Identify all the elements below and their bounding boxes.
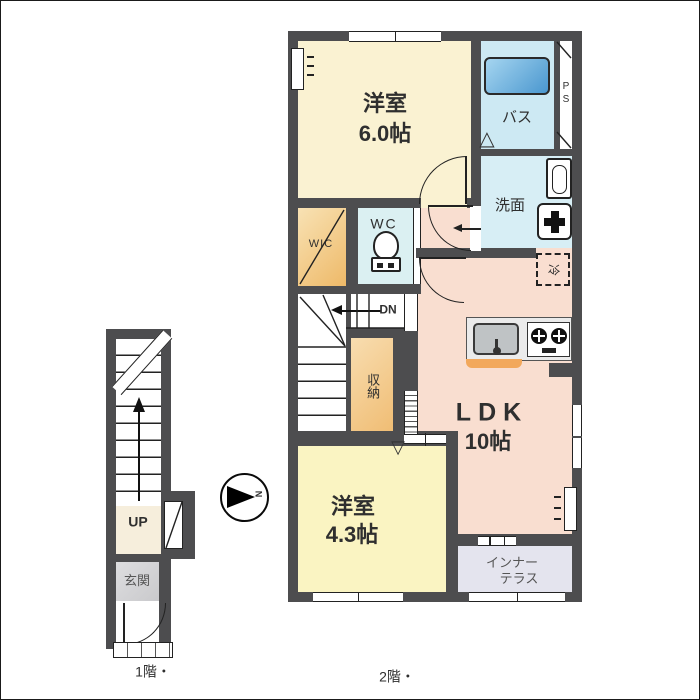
sink-icon: [537, 203, 572, 240]
washing-machine-icon: [546, 158, 572, 199]
dn-arrow-line: [341, 310, 381, 312]
kitchen-stove: [527, 322, 570, 357]
fridge-label: 冷: [546, 263, 559, 275]
bedroom1-size: 6.0帖: [359, 122, 412, 146]
wall: [471, 41, 481, 206]
dn-label: DN: [379, 303, 396, 316]
wc-label: WC: [370, 216, 397, 231]
fold-door-icon: △: [479, 128, 494, 150]
window: [313, 592, 403, 602]
ldk-size: 10帖: [465, 430, 511, 454]
ldk-door-leaf: [419, 257, 466, 259]
floor2-caption: 2階・: [379, 669, 415, 684]
compass-needle: [227, 486, 255, 508]
bedroom2-size: 4.3帖: [326, 523, 379, 547]
wc-door: [413, 208, 421, 284]
up-label: UP: [128, 514, 147, 529]
toilet-tank-detail: [388, 263, 394, 268]
wall: [549, 363, 582, 377]
panel-dash: [554, 496, 561, 498]
window: [572, 405, 582, 436]
wall: [358, 284, 421, 294]
stairs-entry-door: [404, 294, 418, 331]
porch: [113, 642, 173, 658]
bath-label: バス: [502, 110, 532, 127]
up-arrow-head: [133, 397, 145, 412]
wall: [393, 338, 404, 431]
wall: [346, 328, 404, 338]
toilet-tank-detail: [377, 263, 383, 268]
wall: [479, 149, 582, 156]
burner: [551, 328, 567, 344]
up-arrow-line: [138, 411, 140, 501]
terrace-label-line1: インナー: [486, 556, 538, 570]
stairs2f-run: [298, 348, 346, 431]
fridge-box: 冷: [536, 253, 570, 286]
ldk-name: LDK: [456, 399, 528, 427]
ps-label: PS: [561, 81, 572, 107]
bedroom1-door-leaf: [465, 156, 467, 204]
kitchen-sink: [473, 323, 519, 355]
counter-accent: [466, 359, 522, 368]
panel-dash: [554, 518, 561, 520]
faucet-head: [493, 347, 501, 355]
panel-dash: [307, 56, 314, 58]
fold-door-icon: ▽: [391, 438, 405, 458]
panel-dash: [307, 65, 314, 67]
wall: [346, 294, 351, 434]
window: [572, 438, 582, 468]
burner: [531, 328, 547, 344]
stairs2f-winder: [298, 294, 346, 348]
terrace-label-line2: テラス: [500, 572, 539, 586]
washer-drum: [552, 165, 567, 194]
wic-label: WIC: [309, 238, 333, 250]
window: [349, 31, 441, 42]
burner-spoke: [533, 335, 545, 337]
washroom-label: 洗面: [495, 198, 525, 215]
wall: [298, 198, 423, 208]
toilet-bowl: [373, 231, 399, 260]
bedroom2-sliding-door: [404, 434, 446, 444]
entrance-label: 玄関: [124, 574, 150, 588]
wall: [404, 331, 418, 391]
panel-dash: [554, 507, 561, 509]
window: [469, 592, 565, 602]
floor1-caption: 1階・: [135, 664, 171, 679]
kitchen-counter: [466, 317, 572, 361]
storage-label: 収納: [365, 373, 379, 399]
wall: [346, 198, 358, 294]
wall: [554, 41, 560, 151]
wall-panel-icon: [564, 487, 577, 531]
bathtub: [484, 57, 550, 95]
wall: [298, 286, 346, 294]
wall-panel-icon: [291, 48, 304, 90]
panel-dash: [307, 74, 314, 76]
floor-plan-image: △ ▽ 冷: [0, 0, 700, 700]
toilet-tank: [371, 257, 401, 272]
bedroom1-name: 洋室: [363, 92, 407, 116]
compass: N: [220, 473, 269, 522]
compass-north-label: N: [253, 491, 263, 498]
entry-arrow-line: [459, 228, 481, 230]
wall: [456, 534, 582, 546]
closet-1f: [164, 501, 183, 549]
stove-grill: [542, 348, 556, 353]
washroom-door-leaf: [428, 205, 473, 207]
burner-spoke: [553, 335, 565, 337]
bedroom2-name: 洋室: [331, 495, 375, 519]
terrace-opening: [478, 536, 516, 546]
sink-cross: [551, 211, 559, 233]
wall: [446, 446, 458, 592]
toilet-icon: [370, 231, 404, 275]
entrance-door-leaf: [123, 603, 125, 646]
ldk-sliding-door: [404, 391, 418, 438]
entry-arrow-head: [453, 224, 462, 232]
dn-arrow-head: [331, 305, 342, 315]
